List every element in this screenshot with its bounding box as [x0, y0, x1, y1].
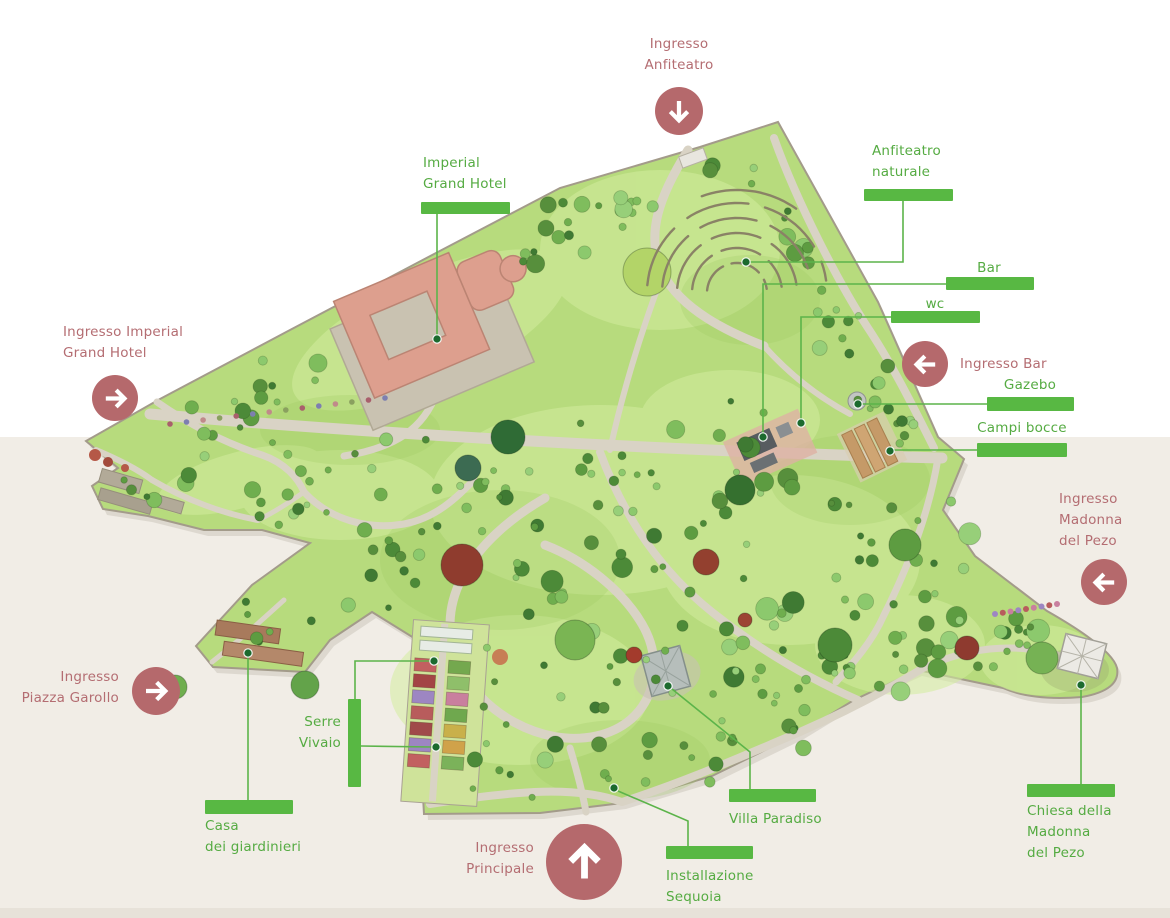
campi-bocce-label-line: Campi bocce [972, 418, 1072, 439]
entrance-label-piazza-garollo: IngressoPiazza Garollo [0, 667, 119, 709]
arrow-left-icon [910, 349, 941, 380]
arrow-right-icon [140, 675, 172, 707]
installazione-sequoia-marker-bar [666, 846, 753, 859]
anfiteatro-naturale-label-line: naturale [872, 162, 992, 183]
principale-label-line: Principale [386, 859, 534, 880]
anfiteatro-label-line: Ingresso [599, 34, 759, 55]
anfiteatro-label-line: Anfiteatro [599, 55, 759, 76]
entrance-marker-madonna-del-pezo-circle [1081, 559, 1127, 605]
park-map-canvas: ImperialGrand HotelAnfiteatronaturaleBar… [0, 0, 1170, 918]
poi-label-wc: wc [885, 294, 985, 315]
chiesa-madonna-del-pezo-label-line: Madonna [1027, 822, 1147, 843]
entrance-marker-anfiteatro-circle [655, 87, 703, 135]
imperial-grand-hotel-label-line: Imperial [423, 153, 543, 174]
imperial-grand-hotel-label-line: Ingresso Imperial [63, 322, 233, 343]
poi-label-bar: Bar [939, 258, 1039, 279]
casa-dei-giardinieri-label-line: Casa [205, 816, 345, 837]
imperial-grand-hotel-marker-bar [421, 202, 510, 214]
entrance-label-madonna-del-pezo: IngressoMadonnadel Pezo [1059, 489, 1169, 552]
installazione-sequoia-label-line: Sequoia [666, 887, 796, 908]
entrance-label-bar: Ingresso Bar [960, 354, 1090, 375]
piazza-garollo-label-line: Piazza Garollo [0, 688, 119, 709]
entrance-label-imperial-grand-hotel: Ingresso ImperialGrand Hotel [63, 322, 233, 364]
serre-vivaio-label-line: Vivaio [241, 733, 341, 754]
entrance-marker-imperial-grand-hotel-circle [92, 375, 138, 421]
chiesa-madonna-del-pezo-marker-bar [1027, 784, 1115, 797]
imperial-grand-hotel-label-line: Grand Hotel [63, 343, 233, 364]
principale-label-line: Ingresso [386, 838, 534, 859]
piazza-garollo-label-line: Ingresso [0, 667, 119, 688]
casa-dei-giardinieri-label-line: dei giardinieri [205, 837, 345, 858]
bar-label-line: Bar [939, 258, 1039, 279]
entrance-marker-principale-circle [546, 824, 622, 900]
poi-label-villa-paradiso: Villa Paradiso [729, 809, 849, 830]
poi-label-chiesa-madonna-del-pezo: Chiesa dellaMadonnadel Pezo [1027, 801, 1147, 864]
villa-paradiso-label-line: Villa Paradiso [729, 809, 849, 830]
poi-label-casa-dei-giardinieri: Casadei giardinieri [205, 816, 345, 858]
campi-bocce-marker-bar [977, 443, 1067, 457]
serre-vivaio-label-line: Serre [241, 712, 341, 733]
arrow-up-icon [559, 837, 610, 888]
poi-label-installazione-sequoia: InstallazioneSequoia [666, 866, 796, 908]
poi-label-imperial-grand-hotel: ImperialGrand Hotel [423, 153, 543, 195]
entrance-label-anfiteatro: IngressoAnfiteatro [599, 34, 759, 76]
chiesa-madonna-del-pezo-label-line: del Pezo [1027, 843, 1147, 864]
anfiteatro-naturale-label-line: Anfiteatro [872, 141, 992, 162]
madonna-del-pezo-label-line: Madonna [1059, 510, 1169, 531]
poi-label-gazebo: Gazebo [980, 375, 1080, 396]
villa-paradiso-marker-bar [729, 789, 816, 802]
label-layer: ImperialGrand HotelAnfiteatronaturaleBar… [0, 0, 1170, 918]
arrow-right-icon [100, 383, 131, 414]
arrow-down-icon [663, 95, 695, 127]
anfiteatro-naturale-marker-bar [864, 189, 953, 201]
serre-vivaio-marker-bar [348, 699, 361, 787]
bar-label-line: Ingresso Bar [960, 354, 1090, 375]
installazione-sequoia-label-line: Installazione [666, 866, 796, 887]
gazebo-label-line: Gazebo [980, 375, 1080, 396]
madonna-del-pezo-label-line: Ingresso [1059, 489, 1169, 510]
poi-label-serre-vivaio: SerreVivaio [241, 712, 341, 754]
gazebo-marker-bar [987, 397, 1074, 411]
arrow-left-icon [1089, 567, 1120, 598]
casa-dei-giardinieri-marker-bar [205, 800, 293, 814]
entrance-marker-piazza-garollo-circle [132, 667, 180, 715]
poi-label-anfiteatro-naturale: Anfiteatronaturale [872, 141, 992, 183]
entrance-label-principale: IngressoPrincipale [386, 838, 534, 880]
wc-label-line: wc [885, 294, 985, 315]
madonna-del-pezo-label-line: del Pezo [1059, 531, 1169, 552]
poi-label-campi-bocce: Campi bocce [972, 418, 1072, 439]
entrance-marker-bar-circle [902, 341, 948, 387]
chiesa-madonna-del-pezo-label-line: Chiesa della [1027, 801, 1147, 822]
imperial-grand-hotel-label-line: Grand Hotel [423, 174, 543, 195]
